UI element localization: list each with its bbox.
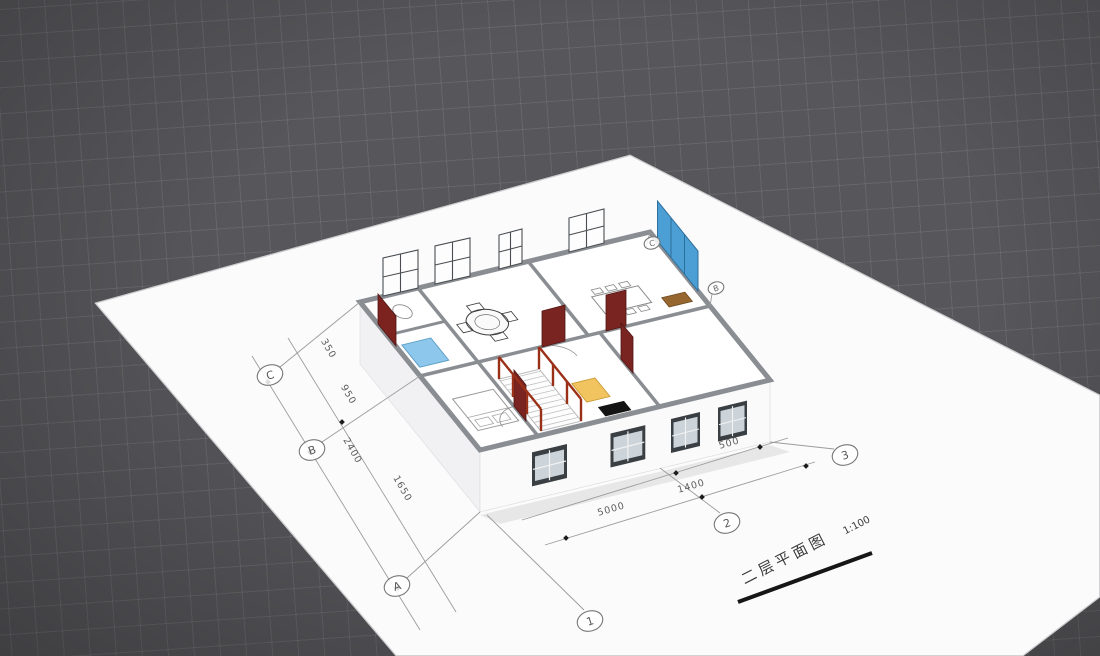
scene-canvas: 5000 1400 500 350 950 2400 1650 1 2 3 A … [0, 0, 1100, 656]
3d-viewport[interactable]: 5000 1400 500 350 950 2400 1650 1 2 3 A … [0, 0, 1100, 656]
door-panel [542, 305, 565, 347]
facade-window-4 [718, 401, 747, 442]
back-window-2 [435, 238, 470, 284]
back-window-3 [499, 229, 522, 269]
facade-window-3 [671, 412, 700, 453]
back-window-1 [383, 250, 418, 296]
